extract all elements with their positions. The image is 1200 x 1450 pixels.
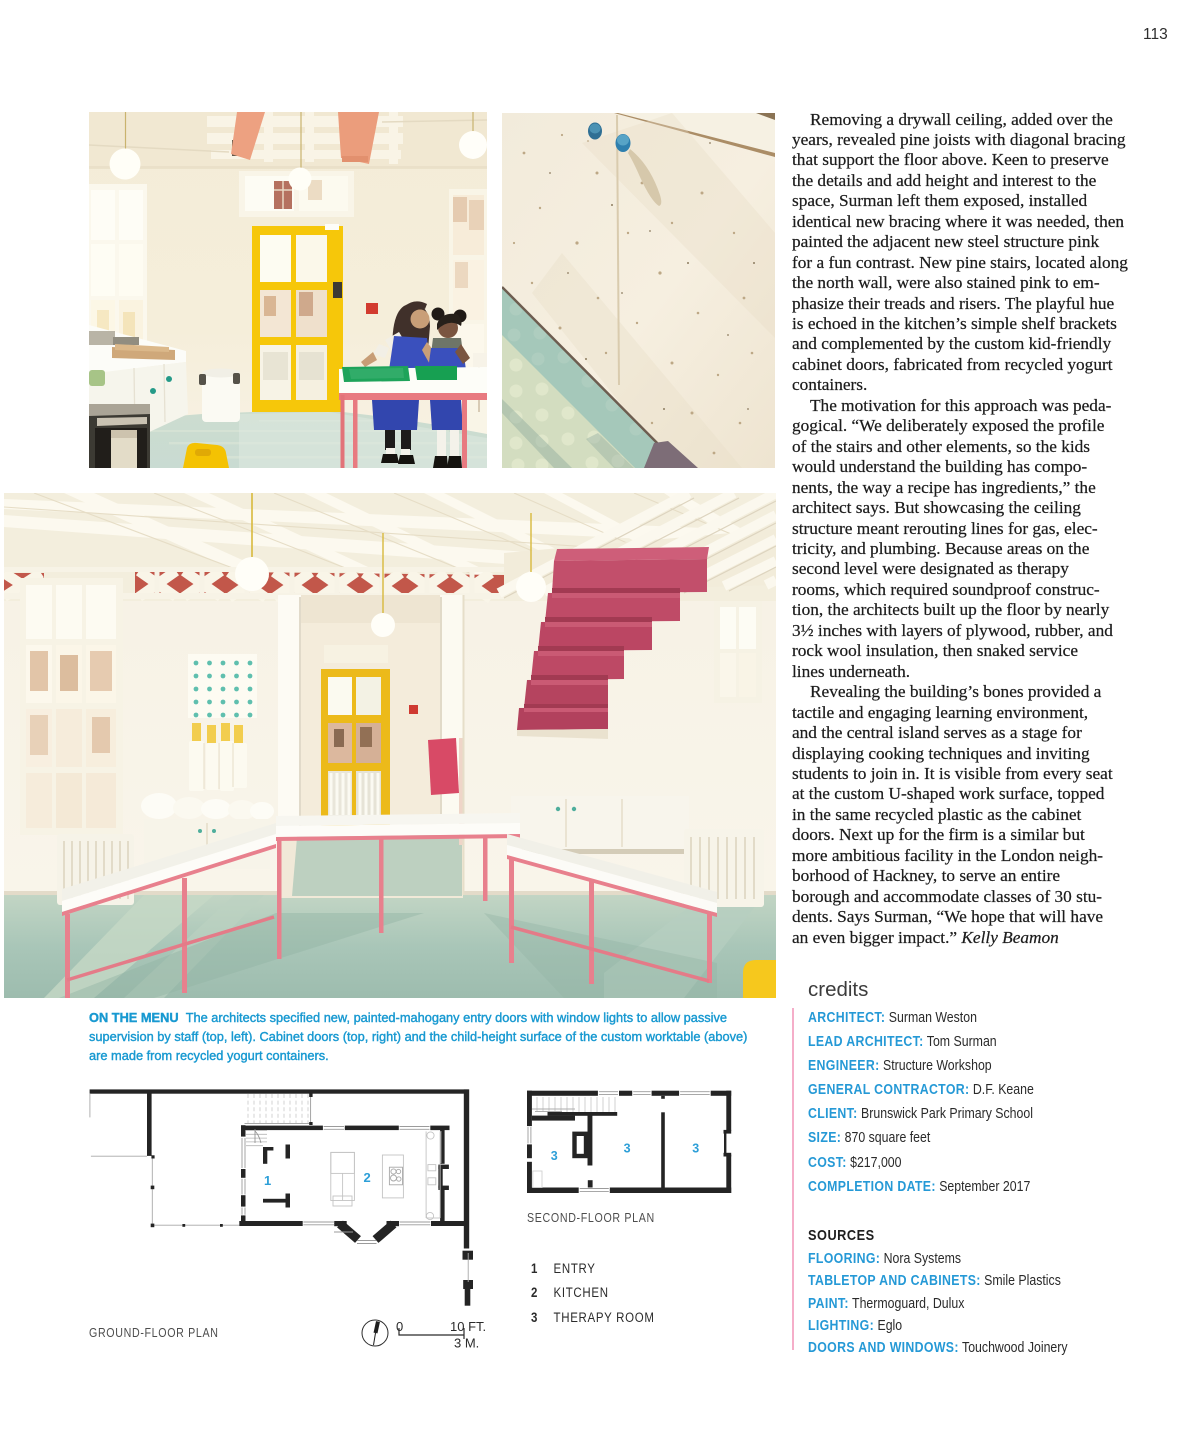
svg-text:3: 3 [692,1142,699,1156]
svg-text:10 FT.: 10 FT. [450,1319,486,1334]
svg-text:3 M.: 3 M. [454,1336,479,1351]
svg-text:3: 3 [551,1149,558,1163]
svg-text:0: 0 [396,1319,403,1334]
svg-text:3: 3 [624,1142,631,1156]
svg-text:1: 1 [264,1173,271,1188]
svg-text:2: 2 [364,1170,371,1185]
